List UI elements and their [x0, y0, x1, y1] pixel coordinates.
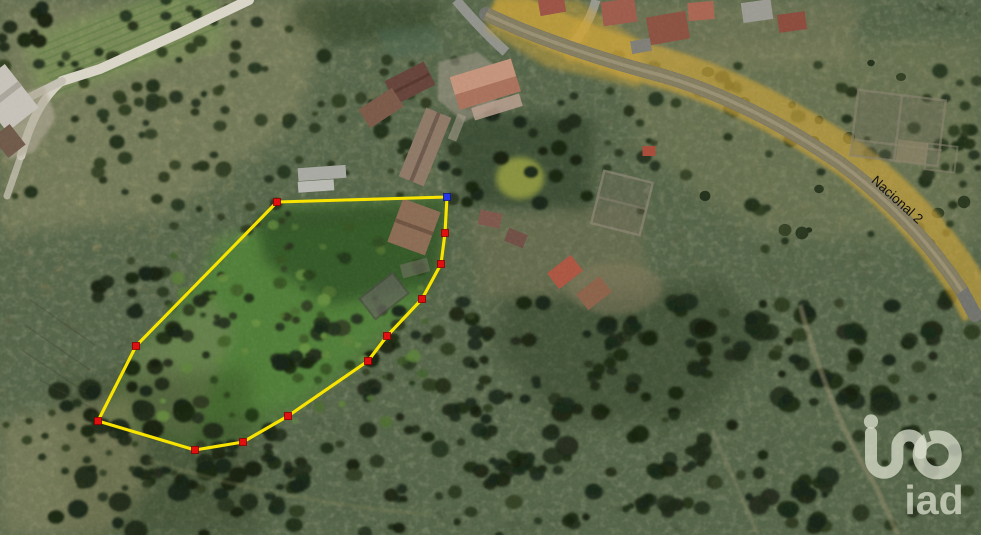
svg-text:iad: iad — [904, 477, 963, 523]
